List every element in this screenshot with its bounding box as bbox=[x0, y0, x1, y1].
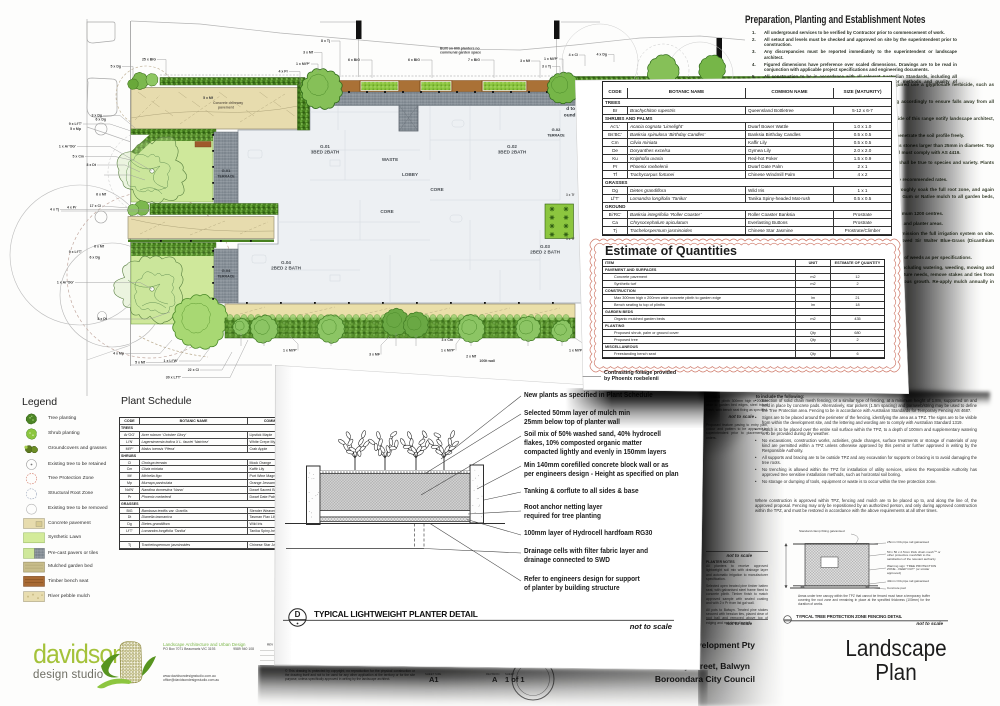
svg-text:8 x Dt: 8 x Dt bbox=[97, 317, 107, 321]
svg-text:8 x Dt: 8 x Dt bbox=[86, 163, 96, 167]
svg-text:25 x BiG: 25 x BiG bbox=[142, 58, 156, 62]
svg-text:1 x Mi’P’: 1 x Mi’P’ bbox=[441, 349, 455, 353]
svg-text:6 x Mf: 6 x Mf bbox=[94, 245, 105, 249]
svg-text:6 x Dg: 6 x Dg bbox=[89, 256, 100, 260]
svg-text:REV: REV bbox=[267, 643, 273, 647]
svg-text:7 x BiG: 7 x BiG bbox=[468, 58, 480, 62]
svg-text:TERRACE: TERRACE bbox=[547, 134, 565, 138]
svg-text:CORE: CORE bbox=[430, 187, 443, 192]
svg-text:2BED 2 BATH: 2BED 2 BATH bbox=[271, 266, 301, 271]
svg-text:G.01: G.01 bbox=[320, 144, 330, 149]
svg-text:6 x BIG: 6 x BIG bbox=[408, 58, 420, 62]
svg-text:pavement: pavement bbox=[218, 106, 235, 110]
svg-text:LOBBY: LOBBY bbox=[402, 172, 418, 177]
svg-text:17 x Cl: 17 x Cl bbox=[90, 204, 101, 208]
svg-text:30 x Lf’T’: 30 x Lf’T’ bbox=[166, 376, 181, 380]
svg-text:1 x Ar’OG’: 1 x Ar’OG’ bbox=[59, 145, 76, 149]
svg-text:3 x Mf: 3 x Mf bbox=[520, 59, 531, 63]
svg-text:WASTE: WASTE bbox=[382, 157, 398, 162]
svg-text:1 x Mi’P’: 1 x Mi’P’ bbox=[544, 57, 558, 61]
svg-text:6 x BiG: 6 x BiG bbox=[348, 58, 360, 62]
svg-text:4 x Dg: 4 x Dg bbox=[596, 53, 607, 57]
svg-text:G.03: G.03 bbox=[540, 244, 550, 249]
svg-text:3 x Tf: 3 x Tf bbox=[566, 237, 575, 241]
svg-text:davidson: davidson bbox=[33, 640, 125, 669]
svg-text:G.02: G.02 bbox=[507, 144, 517, 149]
svg-text:5 x Mp: 5 x Mp bbox=[70, 127, 81, 131]
svg-text:1 x Mi’P’: 1 x Mi’P’ bbox=[283, 349, 297, 353]
svg-text:4 x Pr: 4 x Pr bbox=[278, 70, 288, 74]
svg-text:4 x Tj: 4 x Tj bbox=[50, 208, 59, 212]
svg-text:3 x Mf: 3 x Mf bbox=[303, 51, 314, 55]
svg-text:2BED 2 BATH: 2BED 2 BATH bbox=[530, 250, 560, 255]
svg-text:3 x Cm: 3 x Cm bbox=[442, 338, 453, 342]
svg-text:9 x Lf’T’: 9 x Lf’T’ bbox=[69, 250, 82, 254]
svg-text:CORE: CORE bbox=[380, 209, 393, 214]
svg-text:5 x Dg: 5 x Dg bbox=[110, 65, 121, 69]
svg-text:2 x Mf: 2 x Mf bbox=[466, 355, 477, 359]
svg-text:3 x Tj: 3 x Tj bbox=[542, 65, 551, 69]
svg-text:Concrete driveway: Concrete driveway bbox=[213, 101, 243, 105]
svg-text:6 x Dg: 6 x Dg bbox=[95, 118, 106, 122]
svg-text:ound: ound bbox=[564, 113, 576, 119]
svg-text:8 x Tj: 8 x Tj bbox=[321, 39, 330, 43]
svg-text:100lt wall: 100lt wall bbox=[479, 359, 495, 363]
svg-text:3BED 2BATH: 3BED 2BATH bbox=[498, 150, 527, 155]
svg-text:1 x Mi’P’: 1 x Mi’P’ bbox=[296, 62, 310, 66]
svg-text:d to: d to bbox=[566, 106, 575, 112]
svg-text:4 x Mp: 4 x Mp bbox=[113, 352, 124, 356]
svg-text:3 x MF: 3 x MF bbox=[369, 353, 381, 357]
svg-text:1 x Mi’P’: 1 x Mi’P’ bbox=[569, 349, 583, 353]
svg-text:D: D bbox=[295, 610, 301, 619]
svg-text:1 x Ar’OG’: 1 x Ar’OG’ bbox=[57, 281, 74, 285]
svg-text:5 x Mf: 5 x Mf bbox=[135, 361, 146, 365]
svg-text:G.01: G.01 bbox=[222, 168, 231, 173]
svg-text:3BED 2BATH: 3BED 2BATH bbox=[311, 150, 340, 155]
svg-text:design studio: design studio bbox=[33, 669, 103, 681]
svg-text:TERRACE: TERRACE bbox=[217, 175, 235, 179]
svg-text:5 x Cm: 5 x Cm bbox=[73, 155, 84, 159]
svg-text:4 x Pr: 4 x Pr bbox=[67, 206, 77, 210]
svg-text:communal garden space: communal garden space bbox=[440, 51, 481, 55]
svg-text:G.02: G.02 bbox=[552, 127, 561, 132]
svg-text:TERRACE: TERRACE bbox=[217, 275, 235, 279]
svg-text:22 x Cl: 22 x Cl bbox=[188, 368, 199, 372]
svg-text:3 x Tf: 3 x Tf bbox=[566, 193, 575, 197]
svg-text:G.04: G.04 bbox=[222, 268, 231, 273]
svg-text:6 x Mf: 6 x Mf bbox=[96, 193, 107, 197]
svg-text:9 x Lf’T’: 9 x Lf’T’ bbox=[69, 122, 82, 126]
svg-text:5 x Mf: 5 x Mf bbox=[203, 96, 214, 100]
svg-text:G.04: G.04 bbox=[281, 260, 291, 265]
svg-text:4 x Cl: 4 x Cl bbox=[569, 53, 578, 57]
